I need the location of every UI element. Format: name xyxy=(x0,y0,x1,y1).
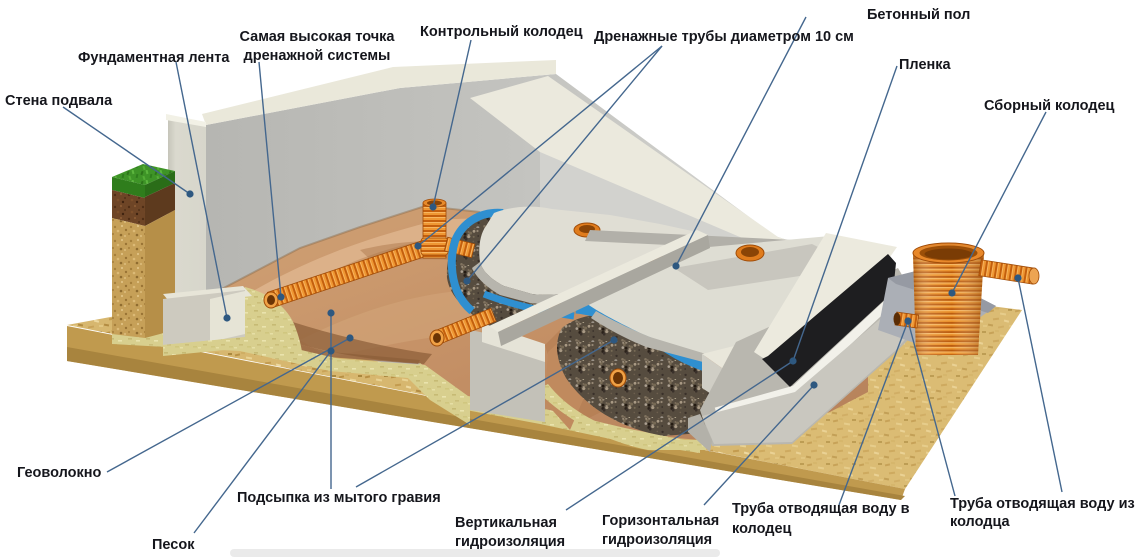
svg-text:Горизонтальная: Горизонтальная xyxy=(602,513,719,529)
svg-text:Труба отводящая воду из: Труба отводящая воду из xyxy=(950,496,1135,512)
svg-text:гидроизоляция: гидроизоляция xyxy=(455,534,565,550)
svg-text:Пленка: Пленка xyxy=(899,57,952,73)
svg-text:колодец: колодец xyxy=(732,521,792,537)
svg-text:Бетонный пол: Бетонный пол xyxy=(867,7,970,23)
svg-text:Подсыпка из мытого гравия: Подсыпка из мытого гравия xyxy=(237,490,441,506)
svg-text:гидроизоляция: гидроизоляция xyxy=(602,532,712,548)
svg-text:дренажной системы: дренажной системы xyxy=(244,48,391,64)
svg-text:Вертикальная: Вертикальная xyxy=(455,515,557,531)
svg-text:Контрольный колодец: Контрольный колодец xyxy=(420,24,583,40)
svg-text:Фундаментная лента: Фундаментная лента xyxy=(78,50,230,66)
svg-text:Геоволокно: Геоволокно xyxy=(17,465,102,481)
svg-text:колодца: колодца xyxy=(950,514,1011,530)
svg-text:Самая высокая точка: Самая высокая точка xyxy=(240,29,396,45)
svg-text:Труба отводящая воду в: Труба отводящая воду в xyxy=(732,501,910,517)
svg-text:Сборный колодец: Сборный колодец xyxy=(984,98,1115,114)
svg-text:Дренажные трубы диаметром 10 с: Дренажные трубы диаметром 10 см xyxy=(594,29,854,45)
svg-text:Песок: Песок xyxy=(152,537,195,553)
svg-text:Стена подвала: Стена подвала xyxy=(5,93,113,109)
